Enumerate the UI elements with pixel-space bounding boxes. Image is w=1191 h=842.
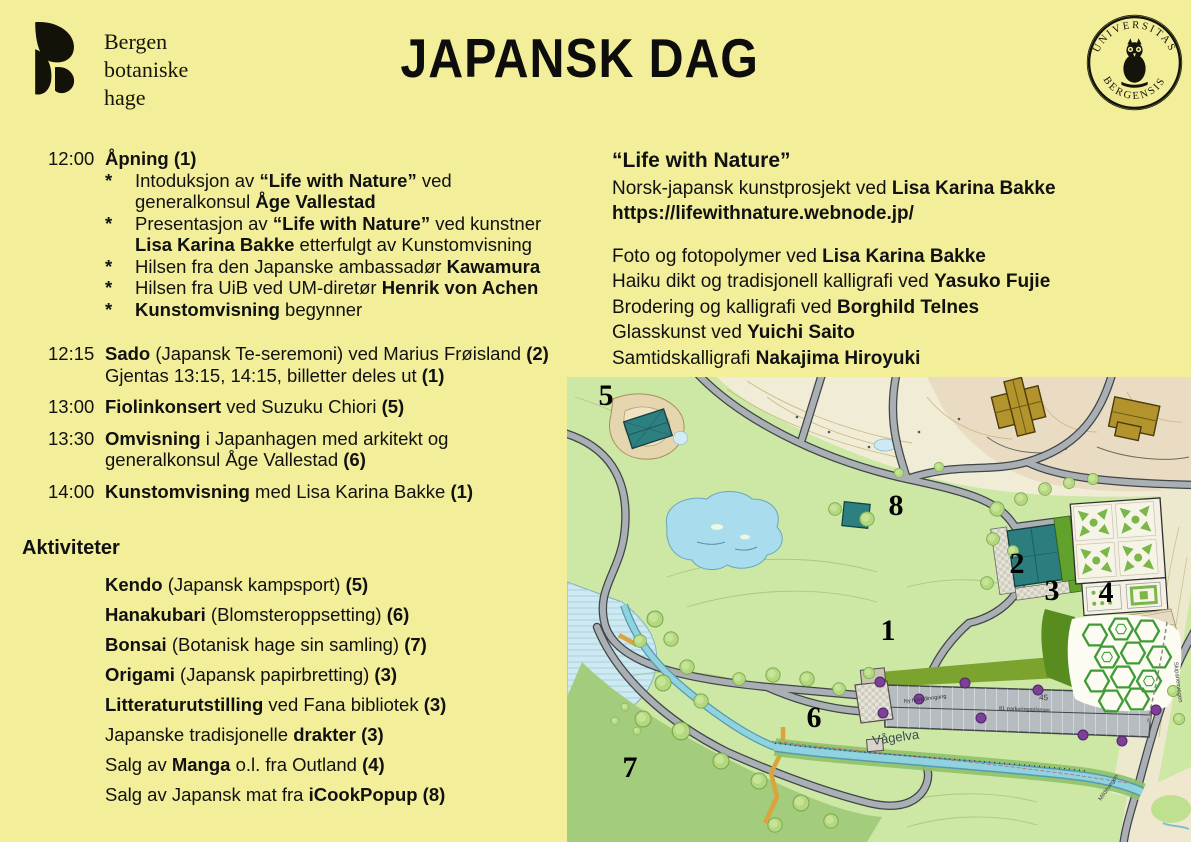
text-segment: ved Fana bibliotek — [263, 694, 423, 715]
formal-garden — [1070, 498, 1168, 616]
artist-line: Brodering og kalligrafi ved Borghild Tel… — [612, 295, 1177, 321]
text-segment: Borghild Telnes — [837, 297, 979, 318]
bullet-asterisk: * — [105, 299, 135, 321]
text-segment: (7) — [404, 634, 427, 655]
owl-icon — [1121, 38, 1147, 88]
text-segment: i Japanhagen med arkitekt og — [201, 428, 449, 449]
text-segment: med Lisa Karina Bakke — [250, 481, 451, 502]
text-segment: (6) — [343, 449, 366, 470]
activity-item: Salg av Manga o.l. fra Outland (4) — [105, 754, 562, 776]
schedule-line: Sado (Japansk Te-seremoni) ved Marius Fr… — [105, 343, 563, 365]
text-segment: Hilsen fra UiB ved UM-diretør — [135, 277, 382, 298]
bullet-line: Lisa Karina Bakke etterfulgt av Kunstomv… — [135, 234, 563, 256]
bullet-asterisk: * — [105, 170, 135, 213]
schedule-time: 14:00 — [48, 481, 105, 503]
schedule-row: 13:00Fiolinkonsert ved Suzuku Chiori (5) — [48, 396, 563, 418]
garden-map: 12345678Vågelva4581 parkeringsplasserNy … — [567, 377, 1191, 842]
text-segment: Salg av Japansk mat fra — [105, 784, 309, 805]
schedule-entry: Åpning (1)*Intoduksjon av “Life with Nat… — [105, 148, 563, 320]
text-segment: Lisa Karina Bakke — [892, 178, 1056, 199]
schedule-entry: Omvisning i Japanhagen med arkitekt ogge… — [105, 428, 563, 471]
text-segment: Foto og fotopolymer ved — [612, 246, 822, 267]
schedule-line: Omvisning i Japanhagen med arkitekt og — [105, 428, 563, 450]
text-segment: Gjentas 13:15, 14:15, billetter deles ut — [105, 365, 422, 386]
schedule-row: 12:15Sado (Japansk Te-seremoni) ved Mari… — [48, 343, 563, 386]
project-artist-list: Foto og fotopolymer ved Lisa Karina Bakk… — [612, 244, 1177, 372]
text-segment: Yasuko Fujie — [934, 271, 1050, 292]
schedule-bullet: *Hilsen fra UiB ved UM-diretør Henrik vo… — [105, 277, 563, 299]
text-segment: ved Suzuku Chiori — [221, 396, 381, 417]
schedule-time: 12:00 — [48, 148, 105, 320]
text-segment: Samtidskalligrafi — [612, 348, 756, 369]
activity-item: Bonsai (Botanisk hage sin samling) (7) — [105, 634, 562, 656]
text-segment: Norsk-japansk kunstprosjekt ved — [612, 178, 892, 199]
brand-name: Bergen botaniske hage — [104, 28, 188, 112]
schedule-bullet: *Hilsen fra den Japanske ambassadør Kawa… — [105, 256, 563, 278]
text-segment: (Blomsteroppsetting) — [206, 604, 387, 625]
text-segment: Sado — [105, 343, 150, 364]
bergen-botaniske-hage-leaf-logo — [28, 20, 82, 100]
text-segment: ved kunstner — [430, 213, 541, 234]
text-segment: Hilsen fra den Japanske ambassadør — [135, 256, 447, 277]
bullet-text: Intoduksjon av “Life with Nature” vedgen… — [135, 170, 563, 213]
text-segment: Omvisning — [105, 428, 201, 449]
text-segment: “Life with Nature” — [259, 170, 416, 191]
schedule-entry: Kunstomvisning med Lisa Karina Bakke (1) — [105, 481, 563, 503]
text-segment: (4) — [362, 754, 385, 775]
program-schedule: 12:00Åpning (1)*Intoduksjon av “Life wit… — [48, 148, 563, 512]
text-segment: Brodering og kalligrafi ved — [612, 297, 837, 318]
text-segment: Kendo — [105, 574, 163, 595]
text-segment: (3) — [424, 694, 447, 715]
text-segment: (5) — [382, 396, 405, 417]
project-section: “Life with Nature” Norsk-japansk kunstpr… — [612, 148, 1177, 371]
text-segment: etterfulgt av Kunstomvisning — [294, 234, 532, 255]
text-segment: Nakajima Hiroyuki — [756, 348, 921, 369]
text-segment: Henrik von Achen — [382, 277, 539, 298]
brand-line: Bergen — [104, 28, 188, 56]
schedule-line: Gjentas 13:15, 14:15, billetter deles ut… — [105, 365, 563, 387]
activity-item: Salg av Japansk mat fra iCookPopup (8) — [105, 784, 562, 806]
project-line: https://lifewithnature.webnode.jp/ — [612, 201, 1177, 227]
text-segment: (1) — [422, 365, 445, 386]
map-marker-6: 6 — [807, 701, 822, 734]
activities-section: Aktiviteter Kendo (Japansk kampsport) (5… — [22, 538, 562, 814]
artist-line: Samtidskalligrafi Nakajima Hiroyuki — [612, 346, 1177, 372]
bullet-asterisk: * — [105, 277, 135, 299]
artist-line: Glasskunst ved Yuichi Saito — [612, 320, 1177, 346]
text-segment: Bonsai — [105, 634, 167, 655]
text-segment: Manga — [172, 754, 231, 775]
bullet-line: Kunstomvisning begynner — [135, 299, 563, 321]
text-segment: Lisa Karina Bakke — [135, 234, 294, 255]
page-title: JAPANSK DAG — [401, 26, 759, 90]
schedule-entry: Fiolinkonsert ved Suzuku Chiori (5) — [105, 396, 563, 418]
text-segment: (2) — [526, 343, 549, 364]
text-segment: (3) — [374, 664, 397, 685]
page-title-wrap: JAPANSK DAG — [285, 26, 875, 90]
activities-heading: Aktiviteter — [22, 538, 562, 560]
text-segment: (Japansk Te-seremoni) ved Marius Frøisla… — [150, 343, 526, 364]
text-segment: Intoduksjon av — [135, 170, 259, 191]
event-poster: Bergen botaniske hage JAPANSK DAG UNIVER… — [0, 0, 1191, 842]
text-segment: Kunstomvisning — [135, 299, 280, 320]
schedule-time: 13:30 — [48, 428, 105, 471]
text-segment: Åge Vallestad — [255, 191, 375, 212]
map-marker-1: 1 — [881, 614, 896, 647]
schedule-bullet: *Kunstomvisning begynner — [105, 299, 563, 321]
text-segment: begynner — [280, 299, 362, 320]
activity-item: Kendo (Japansk kampsport) (5) — [105, 574, 562, 596]
bullet-text: Presentasjon av “Life with Nature” ved k… — [135, 213, 563, 256]
map-marker-8: 8 — [889, 489, 904, 522]
text-segment: generalkonsul Åge Vallestad — [105, 449, 343, 470]
text-segment: Åpning (1) — [105, 148, 196, 169]
schedule-row: 14:00Kunstomvisning med Lisa Karina Bakk… — [48, 481, 563, 503]
activity-item: Hanakubari (Blomsteroppsetting) (6) — [105, 604, 562, 626]
text-segment: generalkonsul — [135, 191, 255, 212]
text-segment: https://lifewithnature.webnode.jp/ — [612, 203, 914, 224]
schedule-line: Fiolinkonsert ved Suzuku Chiori (5) — [105, 396, 563, 418]
schedule-row: 13:30Omvisning i Japanhagen med arkitekt… — [48, 428, 563, 471]
map-marker-3: 3 — [1045, 574, 1060, 607]
activity-item: Japanske tradisjonelle drakter (3) — [105, 724, 562, 746]
text-segment: “Life with Nature” — [273, 213, 430, 234]
text-segment: (1) — [450, 481, 473, 502]
activity-item: Origami (Japansk papirbretting) (3) — [105, 664, 562, 686]
map-marker-4: 4 — [1099, 576, 1114, 609]
map-marker-2: 2 — [1010, 547, 1025, 580]
text-segment: (Japansk papirbretting) — [175, 664, 375, 685]
project-intro: Norsk-japansk kunstprosjekt ved Lisa Kar… — [612, 176, 1177, 227]
brand-line: hage — [104, 84, 188, 112]
schedule-time: 13:00 — [48, 396, 105, 418]
text-segment: Salg av — [105, 754, 172, 775]
text-segment: drakter (3) — [293, 724, 383, 745]
bullet-text: Hilsen fra den Japanske ambassadør Kawam… — [135, 256, 563, 278]
bullet-text: Hilsen fra UiB ved UM-diretør Henrik von… — [135, 277, 563, 299]
bullet-asterisk: * — [105, 213, 135, 256]
bullet-text: Kunstomvisning begynner — [135, 299, 563, 321]
schedule-line: Åpning (1) — [105, 148, 563, 170]
text-segment: Haiku dikt og tradisjonell kalligrafi ve… — [612, 271, 934, 292]
bullet-asterisk: * — [105, 256, 135, 278]
project-heading: “Life with Nature” — [612, 148, 1177, 174]
text-segment: (6) — [387, 604, 410, 625]
schedule-row: 12:00Åpning (1)*Intoduksjon av “Life wit… — [48, 148, 563, 320]
schedule-entry: Sado (Japansk Te-seremoni) ved Marius Fr… — [105, 343, 563, 386]
pond — [666, 492, 782, 570]
bullet-line: Hilsen fra den Japanske ambassadør Kawam… — [135, 256, 563, 278]
bullet-line: Presentasjon av “Life with Nature” ved k… — [135, 213, 563, 235]
activity-item: Litteraturutstilling ved Fana bibliotek … — [105, 694, 562, 716]
text-segment: Litteraturutstilling — [105, 694, 263, 715]
text-segment: Lisa Karina Bakke — [822, 246, 986, 267]
schedule-line: Kunstomvisning med Lisa Karina Bakke (1) — [105, 481, 563, 503]
text-segment: (Botanisk hage sin samling) — [167, 634, 405, 655]
text-segment: o.l. fra Outland — [230, 754, 362, 775]
text-segment: iCookPopup (8) — [309, 784, 446, 805]
text-segment: Glasskunst ved — [612, 322, 747, 343]
map-marker-7: 7 — [623, 751, 638, 784]
text-segment: (5) — [346, 574, 369, 595]
map-marker-5: 5 — [599, 379, 614, 412]
bullet-line: Intoduksjon av “Life with Nature” ved — [135, 170, 563, 192]
brand-line: botaniske — [104, 56, 188, 84]
project-line: Norsk-japansk kunstprosjekt ved Lisa Kar… — [612, 176, 1177, 202]
text-segment: Kawamura — [447, 256, 541, 277]
map-label: 45 — [1039, 693, 1049, 702]
artist-line: Haiku dikt og tradisjonell kalligrafi ve… — [612, 269, 1177, 295]
text-segment: Kunstomvisning — [105, 481, 250, 502]
uib-owl-seal: UNIVERSITAS BERGENSIS — [1086, 14, 1183, 111]
text-segment: Japanske tradisjonelle — [105, 724, 293, 745]
schedule-line: generalkonsul Åge Vallestad (6) — [105, 449, 563, 471]
bullet-line: generalkonsul Åge Vallestad — [135, 191, 563, 213]
schedule-bullet: *Intoduksjon av “Life with Nature” vedge… — [105, 170, 563, 213]
schedule-bullet: *Presentasjon av “Life with Nature” ved … — [105, 213, 563, 256]
text-segment: (Japansk kampsport) — [163, 574, 346, 595]
text-segment: Yuichi Saito — [747, 322, 855, 343]
artist-line: Foto og fotopolymer ved Lisa Karina Bakk… — [612, 244, 1177, 270]
bullet-line: Hilsen fra UiB ved UM-diretør Henrik von… — [135, 277, 563, 299]
text-segment: ved — [417, 170, 452, 191]
activities-list: Kendo (Japansk kampsport) (5)Hanakubari … — [22, 574, 562, 806]
text-segment: Origami — [105, 664, 175, 685]
text-segment: Presentasjon av — [135, 213, 273, 234]
text-segment: Hanakubari — [105, 604, 206, 625]
text-segment: Fiolinkonsert — [105, 396, 221, 417]
schedule-time: 12:15 — [48, 343, 105, 386]
